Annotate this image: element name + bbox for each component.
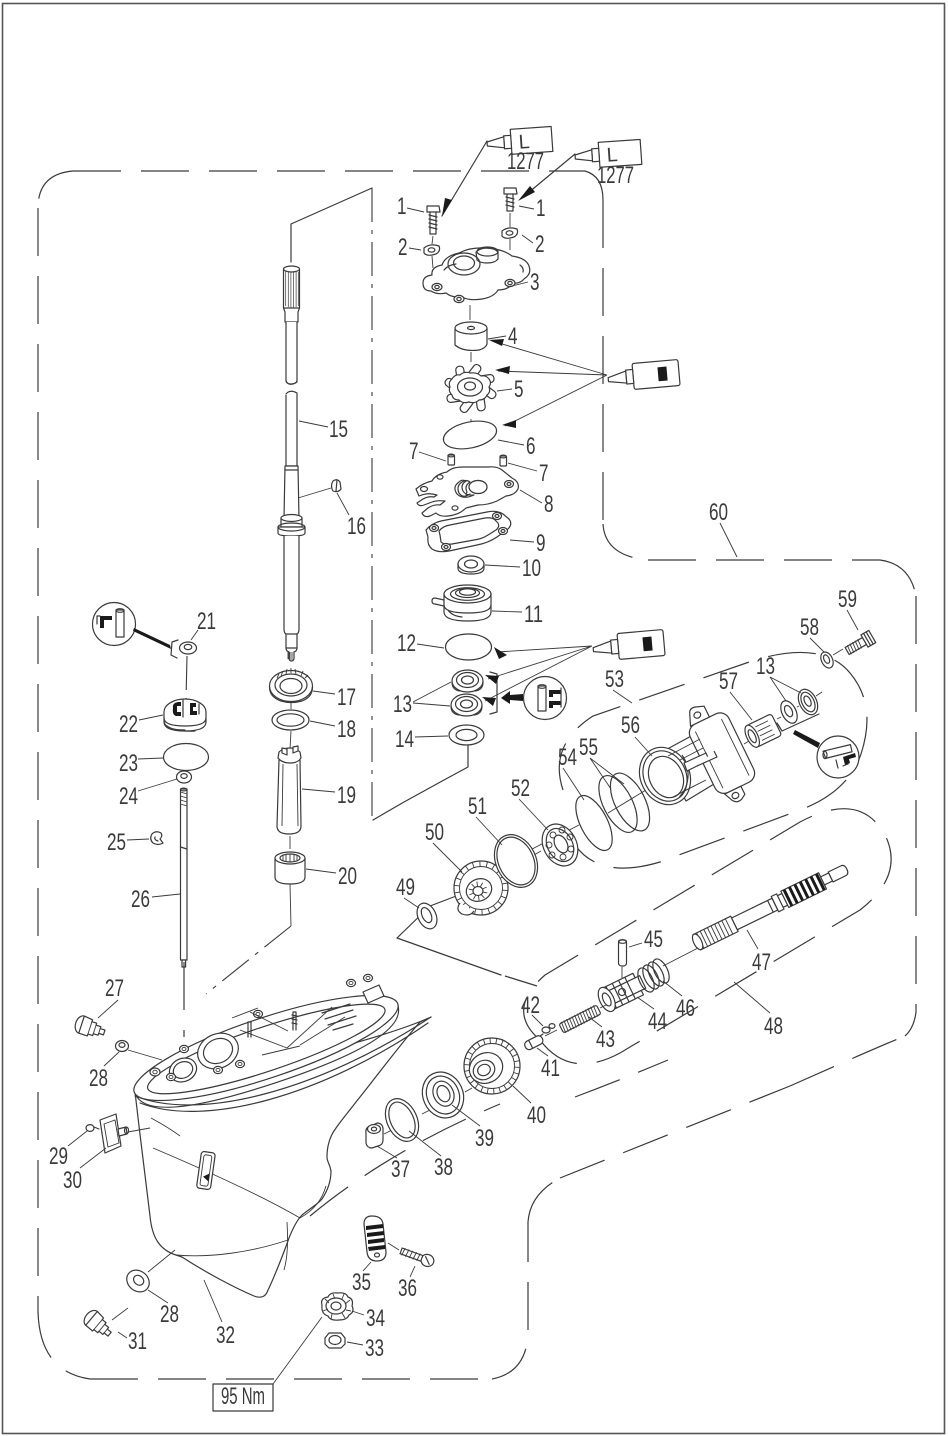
svg-text:41: 41 <box>541 1055 560 1082</box>
svg-text:15: 15 <box>329 416 348 443</box>
svg-text:37: 37 <box>391 1156 410 1183</box>
svg-text:22: 22 <box>119 711 138 738</box>
svg-text:13: 13 <box>393 691 412 718</box>
svg-text:33: 33 <box>365 1335 384 1362</box>
svg-text:51: 51 <box>468 793 487 820</box>
svg-text:20: 20 <box>338 863 357 890</box>
svg-text:18: 18 <box>337 716 356 743</box>
svg-text:34: 34 <box>366 1305 385 1332</box>
svg-text:8: 8 <box>544 491 554 518</box>
svg-text:5: 5 <box>514 376 524 403</box>
svg-text:2: 2 <box>535 231 545 258</box>
svg-text:2: 2 <box>398 234 408 261</box>
svg-text:14: 14 <box>395 726 414 753</box>
svg-text:59: 59 <box>838 586 857 613</box>
svg-text:57: 57 <box>719 668 738 695</box>
svg-text:28: 28 <box>160 1301 179 1328</box>
svg-text:1277: 1277 <box>597 162 634 189</box>
svg-text:32: 32 <box>216 1322 235 1349</box>
svg-text:30: 30 <box>63 1167 82 1194</box>
svg-text:49: 49 <box>396 874 415 901</box>
svg-text:44: 44 <box>648 1008 667 1035</box>
svg-text:45: 45 <box>644 926 663 953</box>
svg-text:40: 40 <box>527 1102 546 1129</box>
svg-text:29: 29 <box>49 1143 68 1170</box>
svg-text:7: 7 <box>409 438 419 465</box>
svg-text:42: 42 <box>521 992 540 1019</box>
svg-text:7: 7 <box>539 460 549 487</box>
svg-text:95 Nm: 95 Nm <box>221 1383 265 1410</box>
svg-text:9: 9 <box>536 530 546 557</box>
svg-text:48: 48 <box>764 1013 783 1040</box>
svg-text:35: 35 <box>352 1269 371 1296</box>
svg-text:27: 27 <box>105 975 124 1002</box>
svg-text:13: 13 <box>756 653 775 680</box>
svg-text:46: 46 <box>676 995 695 1022</box>
svg-text:56: 56 <box>621 712 640 739</box>
svg-text:26: 26 <box>131 886 150 913</box>
svg-text:24: 24 <box>119 783 138 810</box>
svg-text:10: 10 <box>522 555 541 582</box>
svg-text:1277: 1277 <box>507 148 544 175</box>
svg-text:60: 60 <box>709 499 728 526</box>
svg-text:6: 6 <box>526 433 536 460</box>
svg-text:31: 31 <box>128 1328 147 1355</box>
svg-text:47: 47 <box>752 949 771 976</box>
svg-text:43: 43 <box>596 1026 615 1053</box>
svg-text:54: 54 <box>558 744 577 771</box>
svg-text:23: 23 <box>119 750 138 777</box>
svg-text:38: 38 <box>434 1154 453 1181</box>
svg-text:39: 39 <box>475 1125 494 1152</box>
svg-text:11: 11 <box>524 601 543 628</box>
svg-text:25: 25 <box>107 829 126 856</box>
svg-text:1: 1 <box>397 193 407 220</box>
svg-text:21: 21 <box>197 608 216 635</box>
svg-text:53: 53 <box>605 666 624 693</box>
svg-text:36: 36 <box>398 1275 417 1302</box>
svg-text:52: 52 <box>511 775 530 802</box>
svg-text:28: 28 <box>89 1065 108 1092</box>
svg-text:58: 58 <box>800 614 819 641</box>
svg-text:19: 19 <box>337 782 356 809</box>
svg-text:4: 4 <box>508 323 518 350</box>
svg-text:1: 1 <box>536 195 546 222</box>
svg-text:50: 50 <box>425 819 444 846</box>
svg-text:3: 3 <box>530 269 540 296</box>
svg-text:16: 16 <box>347 513 366 540</box>
svg-text:55: 55 <box>579 734 598 761</box>
svg-text:12: 12 <box>397 630 416 657</box>
svg-text:17: 17 <box>337 684 356 711</box>
